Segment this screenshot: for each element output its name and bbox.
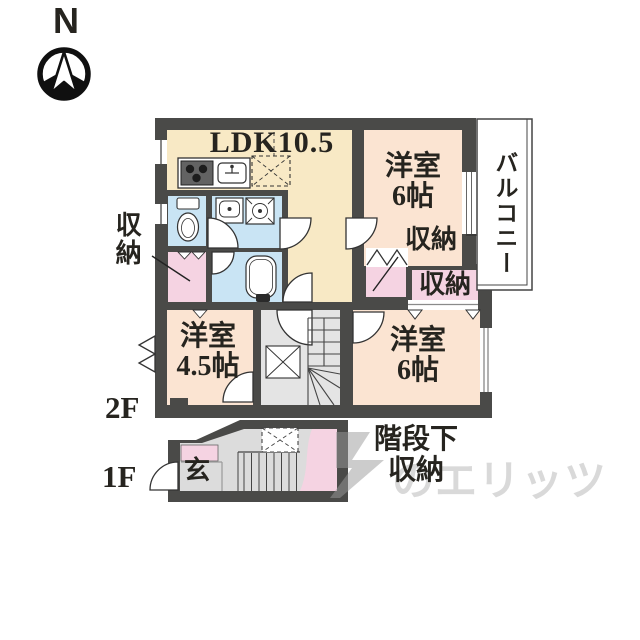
compass-north-label: N bbox=[53, 2, 79, 41]
closet-left bbox=[168, 252, 206, 302]
genkan-label: 玄 bbox=[184, 457, 210, 485]
floorplan-image: のエリッツ N LDK10.5 洋室 6帖 収納 収納 収納 洋室 4.5帖 洋… bbox=[0, 0, 640, 640]
floorplan-drawing bbox=[0, 0, 640, 640]
room-label-bedroom-se: 洋室 6帖 bbox=[390, 326, 446, 386]
washbasin-icon bbox=[216, 198, 243, 223]
entrance-door-arc bbox=[150, 462, 178, 490]
wall-notch bbox=[170, 398, 188, 407]
stove-icon bbox=[181, 161, 213, 185]
closet-label-ne: 収納 bbox=[405, 226, 457, 254]
closet-label-se: 収納 bbox=[419, 271, 471, 299]
sink-icon bbox=[218, 163, 246, 183]
floor-tag-2f: 2F bbox=[105, 391, 139, 424]
stairwell-marker bbox=[266, 346, 300, 378]
room-label-bedroom-ne: 洋室 6帖 bbox=[385, 152, 441, 212]
bathtub-icon bbox=[246, 256, 276, 302]
laundry-space-marker bbox=[262, 428, 298, 452]
closet-label-left: 収納 bbox=[112, 208, 140, 270]
window-se-right bbox=[480, 328, 492, 392]
floor-tag-1f: 1F bbox=[102, 460, 136, 493]
understairs-storage-label: 階段下 収納 bbox=[374, 425, 458, 487]
closet-ne bbox=[366, 266, 406, 297]
room-label-bedroom-sw: 洋室 4.5帖 bbox=[176, 322, 239, 382]
balcony-label: バルコニー bbox=[491, 131, 516, 296]
room-label-ldk: LDK10.5 bbox=[210, 127, 335, 159]
compass-icon bbox=[40, 50, 88, 100]
toilet-icon bbox=[177, 198, 199, 241]
folding-door-icon bbox=[366, 248, 408, 267]
casement-window-icon bbox=[139, 336, 155, 372]
washing-machine-icon bbox=[246, 198, 274, 224]
window-toilet-left bbox=[155, 204, 167, 224]
window-ldk-left bbox=[155, 140, 167, 164]
